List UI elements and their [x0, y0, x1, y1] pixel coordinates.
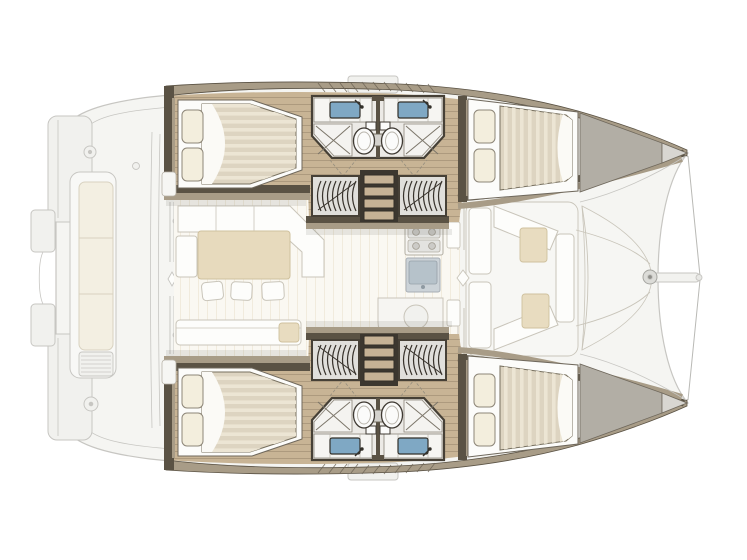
aft-cabin-berth — [178, 100, 302, 188]
fwd-cushion — [520, 228, 547, 262]
companionway-steps — [360, 170, 398, 222]
fwd-bench — [469, 282, 491, 348]
cockpit-grill — [79, 352, 113, 376]
bathrooms — [312, 96, 444, 158]
windlass-center — [648, 275, 653, 280]
entry-step — [162, 172, 176, 196]
divider-cap — [372, 96, 384, 101]
fwd-cushion — [522, 294, 549, 328]
pillow — [474, 110, 495, 143]
bathroom-divider — [376, 96, 380, 158]
bowsprit-tip — [696, 275, 702, 281]
dining-table — [198, 231, 290, 279]
cockpit-bench-cushion — [79, 182, 113, 350]
salon-side-seat — [176, 236, 197, 277]
bench-cushion — [279, 323, 299, 342]
pillow — [474, 149, 495, 182]
washbasin — [330, 100, 364, 118]
washbasin — [398, 100, 432, 118]
catamaran-floorplan — [0, 0, 747, 560]
fwd-bench-back — [556, 234, 574, 322]
stool — [231, 281, 253, 300]
bowsprit — [652, 273, 700, 282]
sink-basin — [409, 261, 437, 284]
forward-cabin-berth — [468, 99, 578, 200]
stern-step-starboard — [31, 304, 55, 346]
fwd-bench — [469, 208, 491, 274]
forward-cockpit — [447, 198, 578, 358]
stool — [262, 281, 285, 300]
floorplan-canvas — [0, 0, 747, 560]
stools — [201, 281, 284, 301]
stool — [201, 281, 224, 301]
stern-step-port — [31, 210, 55, 252]
pillow — [182, 148, 203, 181]
pillow — [182, 110, 203, 143]
faucet — [421, 285, 425, 289]
